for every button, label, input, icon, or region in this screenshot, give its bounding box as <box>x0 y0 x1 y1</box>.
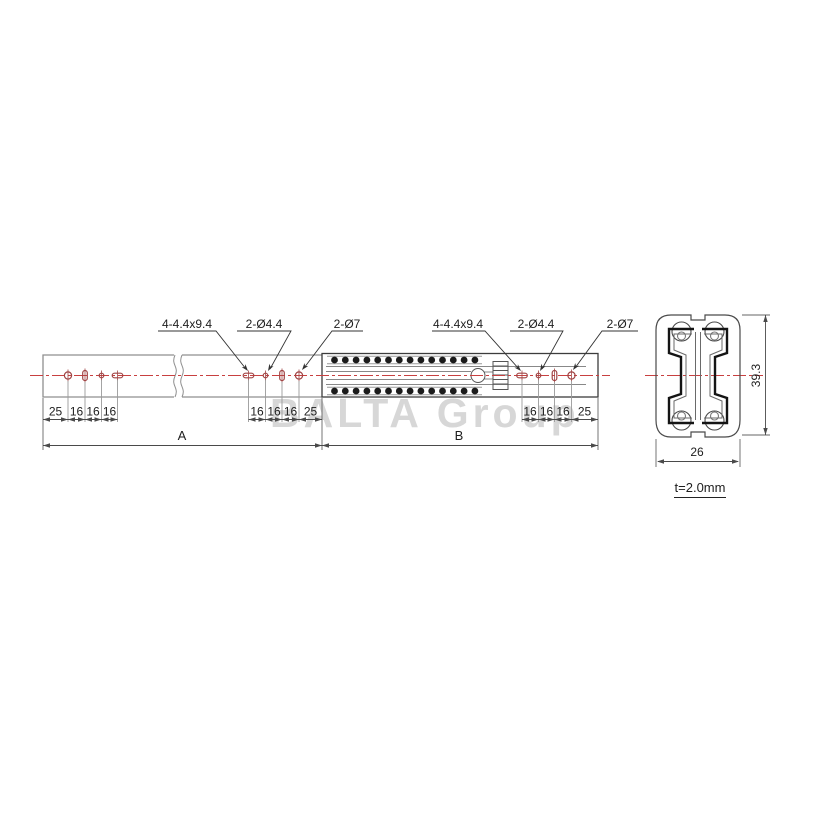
callouts: 4-4.4x9.4 2-Ø4.4 2-Ø7 4-4.4x9.4 2-Ø4.4 2… <box>158 317 638 373</box>
dim-16-a-left: 16 <box>70 405 84 419</box>
technical-drawing: BALTA Group <box>0 0 830 830</box>
dim-16-b: 16 <box>540 405 554 419</box>
section-height-dim: 39.3 <box>742 315 770 435</box>
callout-small-hole-left: 2-Ø4.4 <box>246 317 283 331</box>
dim-16-a-left: 16 <box>103 405 117 419</box>
dim-16-a-right: 16 <box>267 405 281 419</box>
dim-section-width: 26 <box>690 445 704 459</box>
callout-slot-left: 4-4.4x9.4 <box>162 317 212 331</box>
cross-section-view: 39.3 26 t=2.0mm <box>645 315 770 498</box>
dim-length-a: A <box>178 428 187 443</box>
callout-large-hole-left: 2-Ø7 <box>334 317 361 331</box>
thickness-note: t=2.0mm <box>674 480 726 498</box>
dim-16-a-right: 16 <box>284 405 298 419</box>
dim-25-a-left: 25 <box>49 405 63 419</box>
dim-16-b: 16 <box>523 405 537 419</box>
dim-16-a-left: 16 <box>86 405 100 419</box>
callout-small-hole-right: 2-Ø4.4 <box>518 317 555 331</box>
callout-large-hole-right: 2-Ø7 <box>607 317 634 331</box>
dim-16-b: 16 <box>556 405 570 419</box>
drawing-canvas: BALTA Group <box>0 0 830 830</box>
dim-25-a-right: 25 <box>304 405 318 419</box>
wall-thickness-label: t=2.0mm <box>675 480 726 495</box>
callout-slot-right: 4-4.4x9.4 <box>433 317 483 331</box>
dim-section-height: 39.3 <box>749 363 763 387</box>
dim-16-a-right: 16 <box>250 405 264 419</box>
section-width-dim: 26 <box>656 439 740 467</box>
dim-length-b: B <box>455 428 464 443</box>
dim-25-b: 25 <box>578 405 592 419</box>
